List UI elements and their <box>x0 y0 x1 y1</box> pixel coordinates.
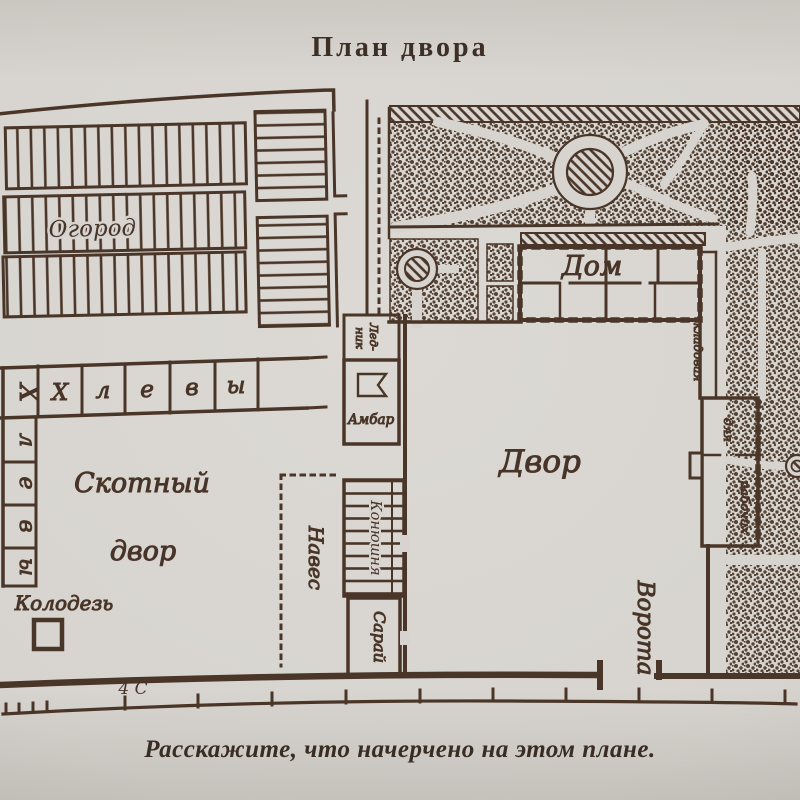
gates-label: Ворота <box>632 580 658 676</box>
canopy: Навес <box>281 475 338 666</box>
sheds-row-letter: в <box>185 375 198 401</box>
garden-east-fence <box>333 113 346 196</box>
front-garden <box>389 239 521 323</box>
garden-bed-row <box>5 123 246 189</box>
garden-label: Огород <box>48 215 136 243</box>
shed-label: Сарай <box>370 611 389 663</box>
sheds-row-letter: л <box>96 378 111 404</box>
workers-label-line2: рабочих <box>738 480 753 534</box>
barn: Амбар <box>344 360 399 444</box>
sheds-column: Х л е в ы <box>3 368 43 586</box>
stable-label: Конюшня <box>367 499 383 575</box>
canopy-label: Навес <box>304 525 328 590</box>
sheds-col-letter: в <box>14 520 39 533</box>
front-garden-bed <box>487 286 513 321</box>
east-garden-circle-core <box>792 461 800 472</box>
sheds-col-letter: ы <box>14 558 39 576</box>
workers-label-line1: для <box>721 418 736 442</box>
garden-bed-row <box>3 252 246 317</box>
park-area <box>390 106 800 674</box>
house: Дом <box>520 233 705 320</box>
sheds-row-letter: Х <box>50 380 70 406</box>
book-page: План двора <box>0 0 800 800</box>
garden-east-fence <box>335 214 348 326</box>
scale-ruler-line <box>3 701 796 714</box>
ice-cellar-label-line1: Лед- <box>367 322 381 351</box>
sheds-row-letter: е <box>140 377 154 403</box>
sheds-col-letter: Х <box>13 382 43 404</box>
yard-west-door-gap <box>400 535 410 552</box>
house-back-wall-hatched <box>521 233 705 245</box>
barn-outline <box>344 360 399 444</box>
yard-plan-drawing: Огород <box>0 0 800 800</box>
barn-label: Амбар <box>347 412 395 428</box>
barn-pennant-symbol <box>358 374 386 396</box>
street-wall-west <box>0 675 597 685</box>
workers-porch <box>690 453 702 478</box>
sheds-row-letter: ы <box>227 373 246 399</box>
front-garden-bed <box>487 244 513 281</box>
well-symbol <box>34 620 62 649</box>
shed: Сарай <box>348 598 400 676</box>
well-label: Колодезь <box>14 591 114 615</box>
garden-bed-strip <box>255 110 327 200</box>
house-label: Дом <box>561 251 623 282</box>
garden-bed-strip <box>257 216 329 326</box>
park-flowerbed-circle <box>567 149 613 195</box>
yard-label: Двор <box>497 444 581 480</box>
exercise-caption: Расскажите, что начерчено на этом плане. <box>0 736 800 764</box>
yard-west-door-gap <box>400 631 410 645</box>
sheds-col-letter: е <box>14 476 39 489</box>
garden-area: Огород <box>0 90 348 333</box>
cattle-yard-label-line1: Скотный <box>74 468 210 499</box>
cattle-yard-label-line2: двор <box>110 536 176 567</box>
sheds-col-letter: л <box>14 433 39 447</box>
scale-ruler: 4 С <box>3 679 796 714</box>
ice-cellar-label-line2: ник <box>353 327 367 349</box>
scale-mark-label: 4 С <box>117 679 147 699</box>
pantry: кладовая <box>691 247 716 398</box>
sheds-row: Х л е в ы <box>0 357 326 418</box>
pantry-label: кладовая <box>691 323 705 382</box>
stable: Конюшня <box>344 480 404 596</box>
front-garden-circle-core <box>405 257 429 281</box>
park-top-wall <box>390 106 800 122</box>
